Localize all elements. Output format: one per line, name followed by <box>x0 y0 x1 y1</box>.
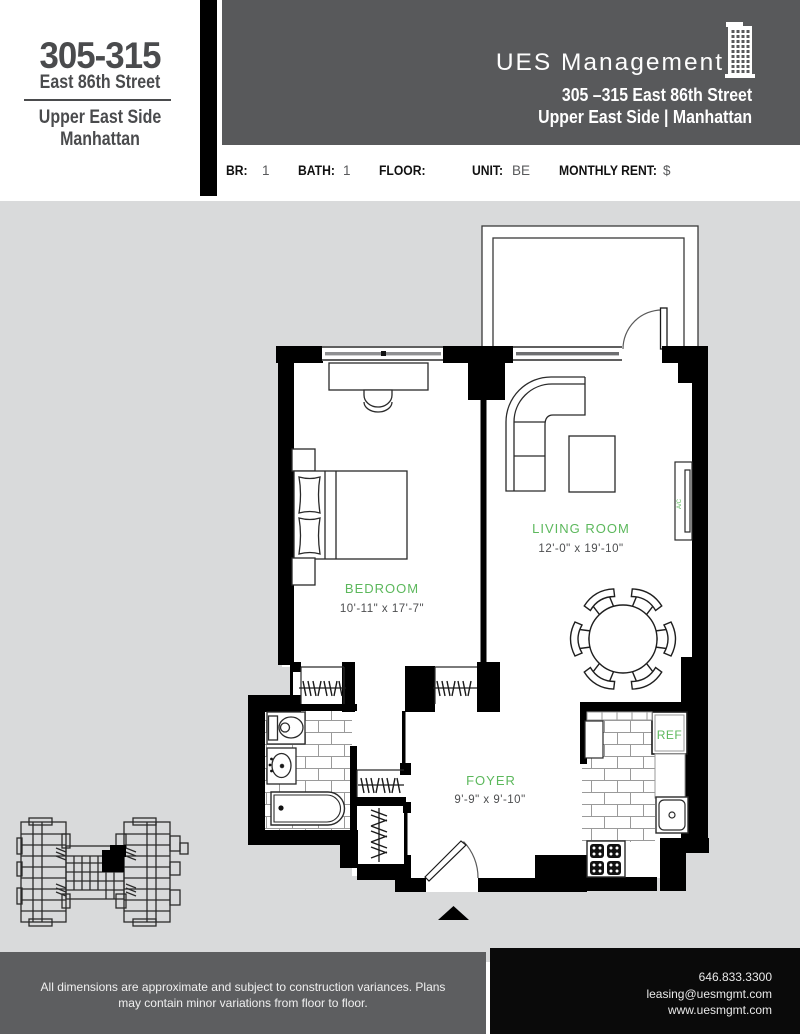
svg-text:FOYER: FOYER <box>466 773 516 788</box>
svg-text:LIVING ROOM: LIVING ROOM <box>532 521 630 536</box>
svg-text:12'-0" x 19'-10": 12'-0" x 19'-10" <box>538 543 623 555</box>
svg-text:A/C: A/C <box>677 498 683 509</box>
svg-text:BEDROOM: BEDROOM <box>345 581 419 596</box>
svg-text:10'-11" x 17'-7": 10'-11" x 17'-7" <box>340 603 424 615</box>
svg-text:9'-9" x 9'-10": 9'-9" x 9'-10" <box>454 794 525 806</box>
svg-text:REF: REF <box>657 728 683 742</box>
